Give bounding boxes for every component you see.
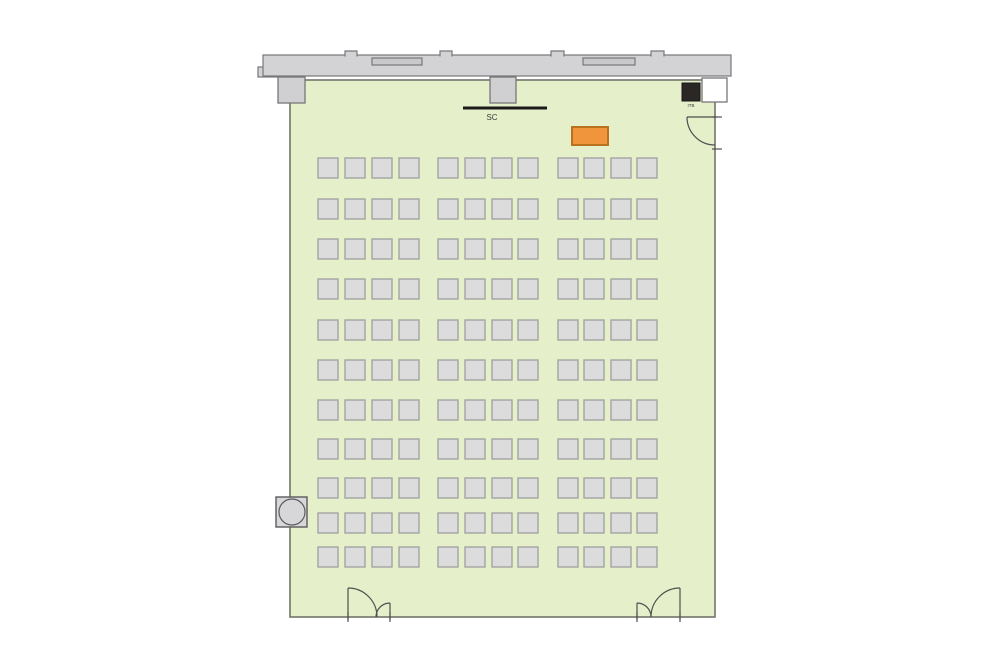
- seat: [611, 478, 631, 498]
- seat: [399, 400, 419, 420]
- seat: [399, 199, 419, 219]
- seat: [399, 239, 419, 259]
- seat: [611, 239, 631, 259]
- seat: [399, 279, 419, 299]
- seat: [558, 513, 578, 533]
- seat: [372, 478, 392, 498]
- seat: [584, 279, 604, 299]
- seat: [558, 279, 578, 299]
- seat: [637, 400, 657, 420]
- seat: [465, 158, 485, 178]
- seat: [372, 279, 392, 299]
- corridor-doorway-tab: [651, 51, 664, 57]
- seat: [558, 547, 578, 567]
- seat: [318, 547, 338, 567]
- seat: [518, 279, 538, 299]
- seat: [465, 400, 485, 420]
- seat: [637, 320, 657, 340]
- seat: [584, 547, 604, 567]
- seat: [345, 199, 365, 219]
- seat: [611, 547, 631, 567]
- seat: [438, 279, 458, 299]
- seat: [372, 547, 392, 567]
- seat: [372, 400, 392, 420]
- seat: [345, 478, 365, 498]
- seat: [318, 199, 338, 219]
- seat: [584, 478, 604, 498]
- seat: [584, 158, 604, 178]
- seat: [438, 239, 458, 259]
- seat: [438, 199, 458, 219]
- seat: [584, 439, 604, 459]
- seat: [637, 360, 657, 380]
- seat: [518, 547, 538, 567]
- seat: [345, 547, 365, 567]
- seat: [558, 400, 578, 420]
- seat: [611, 439, 631, 459]
- seat: [637, 439, 657, 459]
- seat: [558, 320, 578, 340]
- seat: [438, 478, 458, 498]
- seat: [611, 199, 631, 219]
- seat: [584, 239, 604, 259]
- seat: [438, 547, 458, 567]
- seat: [492, 279, 512, 299]
- seat: [637, 199, 657, 219]
- seat: [372, 439, 392, 459]
- seat: [465, 360, 485, 380]
- seat: [465, 199, 485, 219]
- seat: [318, 158, 338, 178]
- seat: [372, 199, 392, 219]
- seat: [492, 158, 512, 178]
- seat: [318, 400, 338, 420]
- corridor-window: [583, 58, 635, 65]
- seat: [318, 239, 338, 259]
- seat: [438, 439, 458, 459]
- seat: [345, 320, 365, 340]
- seat: [637, 239, 657, 259]
- seat: [399, 158, 419, 178]
- seat: [399, 513, 419, 533]
- seat: [558, 478, 578, 498]
- seat: [637, 158, 657, 178]
- equipment-box: [682, 83, 700, 101]
- seat: [584, 320, 604, 340]
- seat: [492, 360, 512, 380]
- corridor-window: [372, 58, 422, 65]
- seat: [318, 439, 338, 459]
- seat: [492, 199, 512, 219]
- seat: [399, 360, 419, 380]
- seat: [637, 513, 657, 533]
- corridor-doorway-tab: [440, 51, 452, 57]
- seat: [492, 547, 512, 567]
- seat: [518, 199, 538, 219]
- corridor-doorway-tab: [551, 51, 564, 57]
- seat: [518, 320, 538, 340]
- seat: [345, 439, 365, 459]
- seat: [372, 360, 392, 380]
- seat: [399, 439, 419, 459]
- seat: [558, 158, 578, 178]
- seat: [558, 439, 578, 459]
- seat: [492, 478, 512, 498]
- pillar: [278, 77, 305, 103]
- seat: [438, 158, 458, 178]
- seat: [438, 400, 458, 420]
- seat: [318, 513, 338, 533]
- corridor-wall: [263, 55, 731, 76]
- seat: [611, 513, 631, 533]
- seat: [318, 320, 338, 340]
- seat: [518, 513, 538, 533]
- seat: [399, 547, 419, 567]
- seat: [611, 360, 631, 380]
- seat: [518, 360, 538, 380]
- seat: [611, 320, 631, 340]
- seat: [438, 320, 458, 340]
- corner-column: [702, 78, 727, 102]
- screen-label: SC: [486, 113, 497, 122]
- seat: [518, 158, 538, 178]
- corridor-doorway-tab: [345, 51, 357, 57]
- seat: [318, 279, 338, 299]
- seat: [372, 320, 392, 340]
- seat: [345, 400, 365, 420]
- seat: [518, 239, 538, 259]
- seat: [345, 239, 365, 259]
- seat: [345, 279, 365, 299]
- floor-plan-page: ITBSC: [0, 0, 1000, 670]
- seat: [611, 158, 631, 178]
- seat: [492, 239, 512, 259]
- classroom-floor-plan: ITBSC: [0, 0, 1000, 670]
- seat: [637, 547, 657, 567]
- seat: [345, 158, 365, 178]
- seat: [465, 513, 485, 533]
- seat: [518, 439, 538, 459]
- seat: [399, 320, 419, 340]
- seat: [611, 279, 631, 299]
- pillar: [490, 77, 516, 103]
- seat: [465, 547, 485, 567]
- seat: [637, 478, 657, 498]
- seat: [637, 279, 657, 299]
- seat: [558, 239, 578, 259]
- wall-fixture-circle: [279, 499, 305, 525]
- seat: [584, 360, 604, 380]
- seat: [492, 513, 512, 533]
- seat: [465, 478, 485, 498]
- seat: [318, 478, 338, 498]
- seat: [345, 360, 365, 380]
- seat: [372, 158, 392, 178]
- seat: [465, 279, 485, 299]
- seat: [465, 239, 485, 259]
- seat: [584, 199, 604, 219]
- seat: [584, 513, 604, 533]
- seat: [345, 513, 365, 533]
- seat: [372, 239, 392, 259]
- seat: [438, 360, 458, 380]
- seat: [558, 360, 578, 380]
- seat: [492, 320, 512, 340]
- seat: [438, 513, 458, 533]
- seat: [465, 439, 485, 459]
- seat: [558, 199, 578, 219]
- equipment-label: ITB: [687, 103, 694, 108]
- seat: [611, 400, 631, 420]
- seat: [518, 478, 538, 498]
- seat: [518, 400, 538, 420]
- instructor-desk: [572, 127, 608, 145]
- seat: [492, 400, 512, 420]
- seat: [584, 400, 604, 420]
- seat: [492, 439, 512, 459]
- seat: [318, 360, 338, 380]
- seat: [399, 478, 419, 498]
- seat: [465, 320, 485, 340]
- seat: [372, 513, 392, 533]
